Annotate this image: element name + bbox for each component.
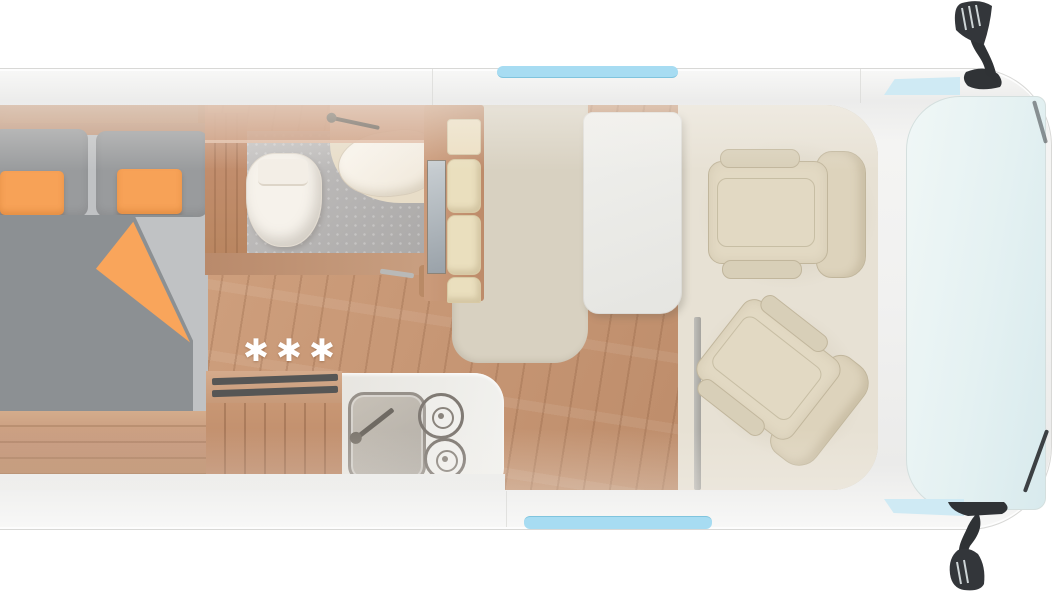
side-mirror-top-icon <box>940 0 1015 92</box>
seat-cushion <box>708 161 828 264</box>
hob-burner <box>418 393 464 439</box>
bed-pillow-orange <box>0 171 64 215</box>
wardrobe-cushion <box>447 277 481 303</box>
side-window-top <box>497 66 678 78</box>
wardrobe-mirror-panel <box>427 160 446 274</box>
kitchen-counter-block <box>206 371 342 490</box>
interior-cutaway: ✱✱✱ <box>0 105 878 490</box>
side-window-bottom <box>524 516 712 529</box>
toilet-lid <box>258 159 308 186</box>
passenger-seat <box>692 149 870 279</box>
seat-armrest <box>720 149 800 168</box>
wardrobe-cushion <box>447 215 481 275</box>
bed-bench <box>0 411 212 475</box>
seat-armrest <box>722 260 802 279</box>
side-mirror-bottom-icon <box>938 500 1016 592</box>
wardrobe-cushion <box>447 159 481 213</box>
bathroom-overhead-cabinet <box>205 105 450 143</box>
bathroom-wall <box>205 253 450 275</box>
windshield <box>906 96 1046 510</box>
body-panel-seam <box>506 491 507 527</box>
toilet <box>246 153 322 247</box>
dining-table <box>583 112 682 314</box>
kitchen-counter <box>338 373 504 490</box>
camper-floorplan: ✱✱✱ <box>0 0 1052 592</box>
bottom-wall-ledge <box>0 474 505 490</box>
body-panel-seam <box>860 69 861 103</box>
wardrobe-shelf <box>447 119 481 155</box>
body-panel-seam <box>432 69 433 105</box>
bed-pillow-orange <box>117 169 182 214</box>
